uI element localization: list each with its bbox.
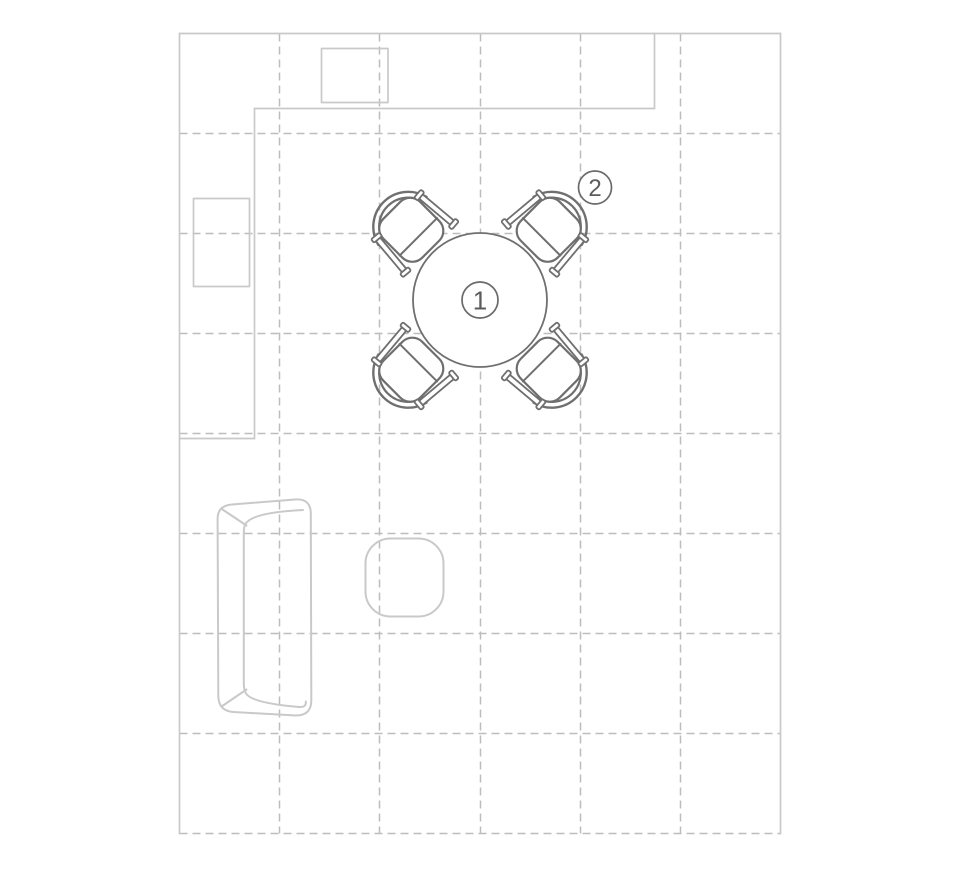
item-marker-chair[interactable]: 2 — [579, 171, 612, 204]
floor-plan-canvas: 1 2 — [0, 0, 960, 870]
floor-plan-page: 1 2 — [0, 0, 960, 870]
item-marker-table[interactable]: 1 — [462, 282, 498, 318]
sofa-corner-line — [222, 690, 247, 707]
sofa-outline — [218, 499, 312, 715]
ottoman[interactable] — [366, 539, 444, 617]
sofa[interactable] — [218, 499, 312, 715]
sofa-corner-line — [223, 510, 247, 526]
wall-cabinet[interactable] — [322, 49, 389, 103]
marker-number: 1 — [473, 285, 487, 315]
marker-number: 2 — [588, 175, 601, 202]
sofa-seat-line — [244, 510, 306, 707]
sideboard[interactable] — [194, 199, 250, 287]
